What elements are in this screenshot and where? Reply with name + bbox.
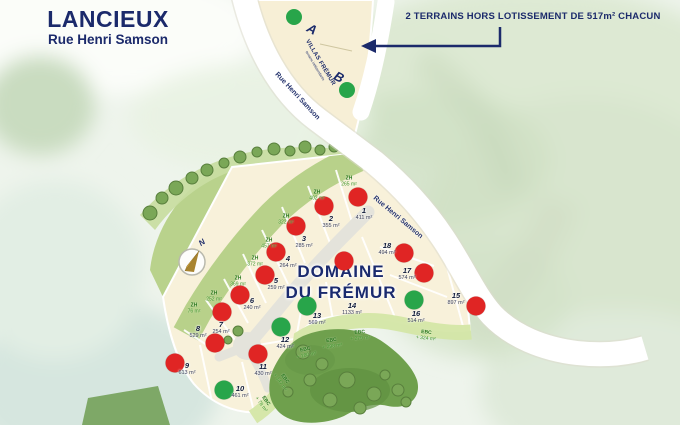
lot-1-status-dot [349, 188, 368, 207]
lot-area: 264 m² [279, 263, 296, 270]
zone-area: 252 m² [206, 297, 222, 303]
zone-area: + 298 m² [322, 343, 342, 351]
zone-area: 372 m² [247, 262, 263, 268]
lot-area: 411 m² [356, 215, 373, 222]
lot-18-status-dot [395, 244, 414, 263]
lot-1-label: 1411 m² [356, 207, 373, 222]
lot-area: 355 m² [322, 223, 339, 230]
lot-15-label: 15897 m² [447, 292, 464, 307]
lot-number: 6 [243, 297, 260, 305]
lot-area: 514 m² [407, 318, 424, 325]
zh-label: ZH76 m² [188, 304, 201, 315]
ebc-label: EBC+ 324 m² [416, 329, 437, 342]
villa-lot-A-status-dot [286, 9, 302, 25]
ebc-label: EBC+ 298 m² [321, 337, 342, 351]
lot-number: 9 [178, 362, 195, 370]
zone-area: 322 m² [278, 220, 294, 226]
ebc-label: EBC+ 180 m² [295, 346, 317, 361]
lot-9-label: 9613 m² [178, 362, 195, 377]
zh-label: ZH252 m² [206, 292, 222, 303]
lot-number: 8 [189, 325, 206, 333]
lot-number: 1 [356, 207, 373, 215]
lot-number: 4 [279, 255, 296, 263]
lot-2-label: 2355 m² [322, 215, 339, 230]
lot-area: 1133 m² [342, 310, 362, 317]
villas-fremur-label: VILLAS FRÉMUR terrains indépendants [300, 39, 337, 90]
lot-number: 10 [231, 385, 248, 393]
zone-area: 76 m² [188, 309, 201, 315]
lot-6-label: 6240 m² [243, 297, 260, 312]
road-label-right: Rue Henri Samson [372, 195, 424, 240]
lot-3-label: 3285 m² [295, 235, 312, 250]
road-label-top: Rue Henri Samson [273, 71, 321, 121]
lot-number: 17 [398, 267, 415, 275]
ebc-label: EBC+ 78 m² [254, 393, 273, 413]
lot-number: 12 [276, 336, 293, 344]
lot-area: 613 m² [178, 370, 195, 377]
lot-area: 897 m² [447, 300, 464, 307]
lot-17-status-dot [415, 264, 434, 283]
zone-area: 402 m² [309, 196, 325, 202]
lot-8-label: 8529 m² [189, 325, 206, 340]
lot-16-status-dot [405, 291, 424, 310]
lot-10-label: 10461 m² [231, 385, 248, 400]
lot-7-status-dot [213, 303, 232, 322]
lot-14-label: 141133 m² [342, 302, 362, 317]
lot-area: 569 m² [308, 320, 325, 327]
lot-11-label: 11430 m² [254, 363, 271, 378]
lot-number: 16 [407, 310, 424, 318]
lot-area: 461 m² [231, 393, 248, 400]
zh-label: ZH457 m² [261, 239, 277, 250]
zone-area: 457 m² [261, 244, 277, 250]
zone-area: + 324 m² [416, 335, 436, 343]
lot-number: 5 [267, 277, 284, 285]
ebc-label: EBC+ 279 m² [350, 330, 371, 342]
zone-area: + 279 m² [350, 335, 370, 342]
lot-number: 2 [322, 215, 339, 223]
lot-18-label: 18494 m² [378, 242, 395, 257]
zone-area: 265 m² [341, 182, 357, 188]
lot-12-label: 12424 m² [276, 336, 293, 351]
zh-label: ZH369 m² [230, 277, 246, 288]
lot-area: 240 m² [243, 305, 260, 312]
lot-17-label: 17574 m² [398, 267, 415, 282]
lot-11-status-dot [249, 345, 268, 364]
zh-label: ZH322 m² [278, 215, 294, 226]
map-header: LANCIEUX Rue Henri Samson [18, 6, 198, 48]
lot-15-status-dot [467, 297, 486, 316]
lot-14-status-dot [335, 252, 354, 271]
lot-number: 3 [295, 235, 312, 243]
compass-north-label: N [197, 237, 207, 248]
site-plan: LANCIEUX Rue Henri Samson 2 TERRAINS HOR… [0, 0, 680, 425]
lot-area: 430 m² [254, 371, 271, 378]
lot-area: 285 m² [295, 243, 312, 250]
lot-number: 14 [342, 302, 362, 310]
ebc-label: EBC+ 147 m² [272, 370, 292, 393]
lot-number: 18 [378, 242, 395, 250]
lot-12-status-dot [272, 318, 291, 337]
lot-area: 259 m² [267, 285, 284, 292]
page-title: LANCIEUX [18, 6, 198, 32]
lot-number: 11 [254, 363, 271, 371]
lot-number: 7 [212, 321, 229, 329]
lot-16-label: 16514 m² [407, 310, 424, 325]
lot-4-label: 4264 m² [279, 255, 296, 270]
lot-number: 15 [447, 292, 464, 300]
zh-label: ZH265 m² [341, 177, 357, 188]
lot-8-status-dot [206, 334, 225, 353]
page-subtitle: Rue Henri Samson [18, 32, 198, 48]
villa-lot-B-status-dot [339, 82, 355, 98]
zh-label: ZH402 m² [309, 191, 325, 202]
lot-area: 574 m² [398, 275, 415, 282]
villa-lot-A-label: A [304, 20, 319, 38]
lot-area: 529 m² [189, 333, 206, 340]
lot-area: 494 m² [378, 250, 395, 257]
zh-label: ZH372 m² [247, 257, 263, 268]
zone-area: 369 m² [230, 282, 246, 288]
lot-area: 424 m² [276, 344, 293, 351]
lot-5-label: 5259 m² [267, 277, 284, 292]
lot-13-label: 13569 m² [308, 312, 325, 327]
lot-number: 13 [308, 312, 325, 320]
callout-text: 2 TERRAINS HORS LOTISSEMENT DE 517m² CHA… [394, 11, 672, 22]
